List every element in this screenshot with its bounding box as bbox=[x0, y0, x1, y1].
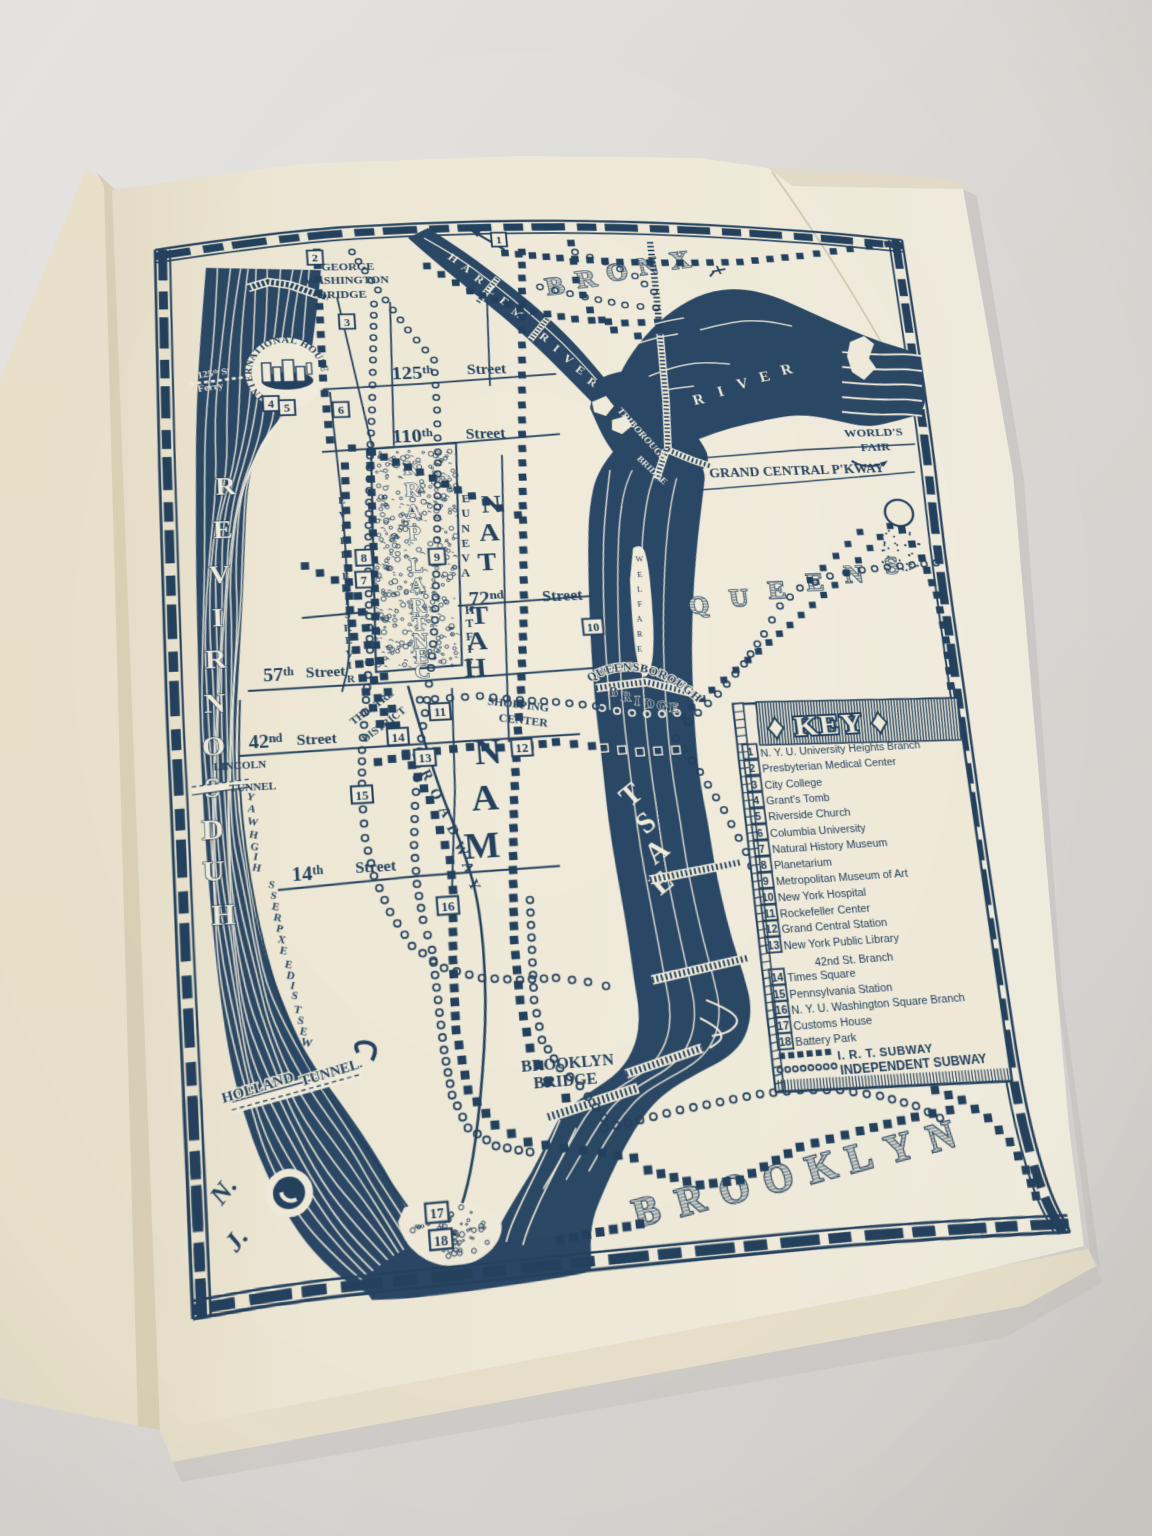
svg-text:A: A bbox=[478, 518, 501, 548]
svg-text:♦ KEY ♦: ♦ KEY ♦ bbox=[766, 706, 891, 744]
svg-text:Street: Street bbox=[542, 588, 584, 606]
svg-text:12: 12 bbox=[765, 924, 779, 937]
svg-text:GEORGE: GEORGE bbox=[321, 261, 375, 273]
svg-text:R: R bbox=[404, 480, 421, 501]
svg-text:BRIDGE: BRIDGE bbox=[533, 1069, 599, 1092]
svg-text:E: E bbox=[461, 538, 470, 550]
svg-text:T: T bbox=[477, 546, 498, 576]
svg-text:Street: Street bbox=[465, 426, 506, 443]
svg-text:11: 11 bbox=[763, 908, 777, 921]
svg-text:16: 16 bbox=[441, 900, 456, 915]
svg-text:10: 10 bbox=[761, 892, 774, 905]
svg-text:14ᵗʰ: 14ᵗʰ bbox=[291, 862, 324, 886]
svg-text:CENTER: CENTER bbox=[498, 713, 548, 730]
svg-text:Q: Q bbox=[687, 592, 711, 620]
svg-text:O: O bbox=[201, 729, 226, 762]
svg-text:U: U bbox=[202, 854, 226, 889]
svg-text:A: A bbox=[470, 778, 501, 819]
svg-text:42ⁿᵈ: 42ⁿᵈ bbox=[248, 731, 283, 754]
svg-text:H: H bbox=[463, 651, 488, 683]
svg-text:E: E bbox=[766, 577, 787, 605]
svg-text:E: E bbox=[279, 944, 289, 957]
svg-text:I: I bbox=[634, 693, 640, 708]
svg-text:D: D bbox=[201, 812, 224, 846]
svg-text:N: N bbox=[203, 687, 227, 720]
svg-text:I: I bbox=[347, 660, 352, 672]
svg-text:D: D bbox=[443, 822, 462, 838]
svg-text:E: E bbox=[212, 514, 233, 544]
svg-text:6: 6 bbox=[338, 405, 345, 417]
svg-text:3: 3 bbox=[344, 317, 351, 328]
svg-text:H: H bbox=[251, 861, 262, 874]
svg-text:N: N bbox=[461, 523, 471, 535]
svg-text:9: 9 bbox=[433, 552, 441, 564]
svg-text:5: 5 bbox=[284, 403, 291, 415]
svg-text:S: S bbox=[290, 989, 299, 1002]
svg-text:R: R bbox=[204, 643, 227, 675]
svg-text:15: 15 bbox=[355, 789, 370, 803]
svg-text:18: 18 bbox=[778, 1036, 792, 1050]
svg-text:17: 17 bbox=[429, 1206, 445, 1222]
svg-text:R: R bbox=[215, 472, 238, 502]
svg-text:13: 13 bbox=[767, 940, 781, 953]
svg-text:2: 2 bbox=[312, 253, 319, 264]
svg-text:B: B bbox=[608, 684, 618, 699]
svg-text:N.: N. bbox=[202, 1171, 243, 1211]
svg-text:B: B bbox=[628, 1187, 666, 1238]
svg-text:BRIDGE: BRIDGE bbox=[318, 289, 367, 301]
svg-text:WORLD'S: WORLD'S bbox=[843, 425, 904, 440]
svg-text:18: 18 bbox=[434, 1233, 450, 1250]
svg-text:V: V bbox=[461, 553, 471, 565]
svg-text:W: W bbox=[246, 815, 259, 828]
svg-text:4: 4 bbox=[268, 399, 275, 411]
svg-text:14: 14 bbox=[391, 731, 405, 745]
svg-text:FAIR: FAIR bbox=[860, 440, 892, 454]
svg-text:L: L bbox=[841, 1134, 878, 1183]
svg-text:E: E bbox=[669, 700, 679, 715]
svg-text:Y: Y bbox=[464, 877, 484, 894]
svg-text:10: 10 bbox=[586, 622, 600, 635]
svg-text:Street: Street bbox=[296, 730, 338, 748]
svg-text:17: 17 bbox=[776, 1020, 790, 1034]
svg-text:Street: Street bbox=[466, 362, 507, 378]
svg-text:R: R bbox=[346, 673, 355, 685]
svg-text:15: 15 bbox=[773, 988, 787, 1002]
svg-text:R: R bbox=[621, 689, 633, 705]
svg-text:A: A bbox=[405, 502, 422, 524]
svg-text:11: 11 bbox=[433, 706, 447, 719]
svg-text:U: U bbox=[728, 584, 751, 612]
svg-text:H: H bbox=[211, 897, 237, 932]
svg-text:Street: Street bbox=[305, 663, 346, 681]
svg-text:57ᵗʰ: 57ᵗʰ bbox=[263, 664, 295, 686]
svg-text:13: 13 bbox=[418, 752, 432, 766]
svg-text:B: B bbox=[542, 271, 567, 300]
svg-text:8: 8 bbox=[360, 553, 368, 565]
svg-text:S: S bbox=[883, 553, 901, 580]
svg-text:Y: Y bbox=[880, 1124, 919, 1173]
svg-text:H: H bbox=[248, 828, 259, 841]
svg-text:14: 14 bbox=[771, 972, 785, 986]
svg-text:7: 7 bbox=[360, 575, 368, 588]
svg-text:A: A bbox=[409, 575, 426, 597]
svg-text:L: L bbox=[409, 555, 425, 577]
svg-text:TUNNEL: TUNNEL bbox=[229, 781, 277, 796]
svg-text:A: A bbox=[247, 803, 258, 816]
svg-text:125ᵗʰ: 125ᵗʰ bbox=[391, 363, 435, 384]
svg-text:K: K bbox=[801, 1143, 843, 1194]
svg-text:V: V bbox=[208, 559, 231, 590]
svg-text:P: P bbox=[407, 524, 422, 546]
svg-text:N: N bbox=[473, 733, 504, 773]
svg-text:12: 12 bbox=[515, 742, 529, 756]
svg-text:G: G bbox=[656, 698, 667, 714]
svg-text:I: I bbox=[211, 602, 224, 633]
svg-text:D: D bbox=[644, 696, 655, 712]
svg-text:A: A bbox=[461, 568, 471, 581]
svg-text:J.: J. bbox=[217, 1222, 254, 1258]
svg-text:16: 16 bbox=[774, 1004, 788, 1018]
svg-text:W: W bbox=[300, 1035, 313, 1049]
svg-text:U: U bbox=[461, 508, 471, 520]
svg-text:LINCOLN: LINCOLN bbox=[213, 759, 266, 774]
